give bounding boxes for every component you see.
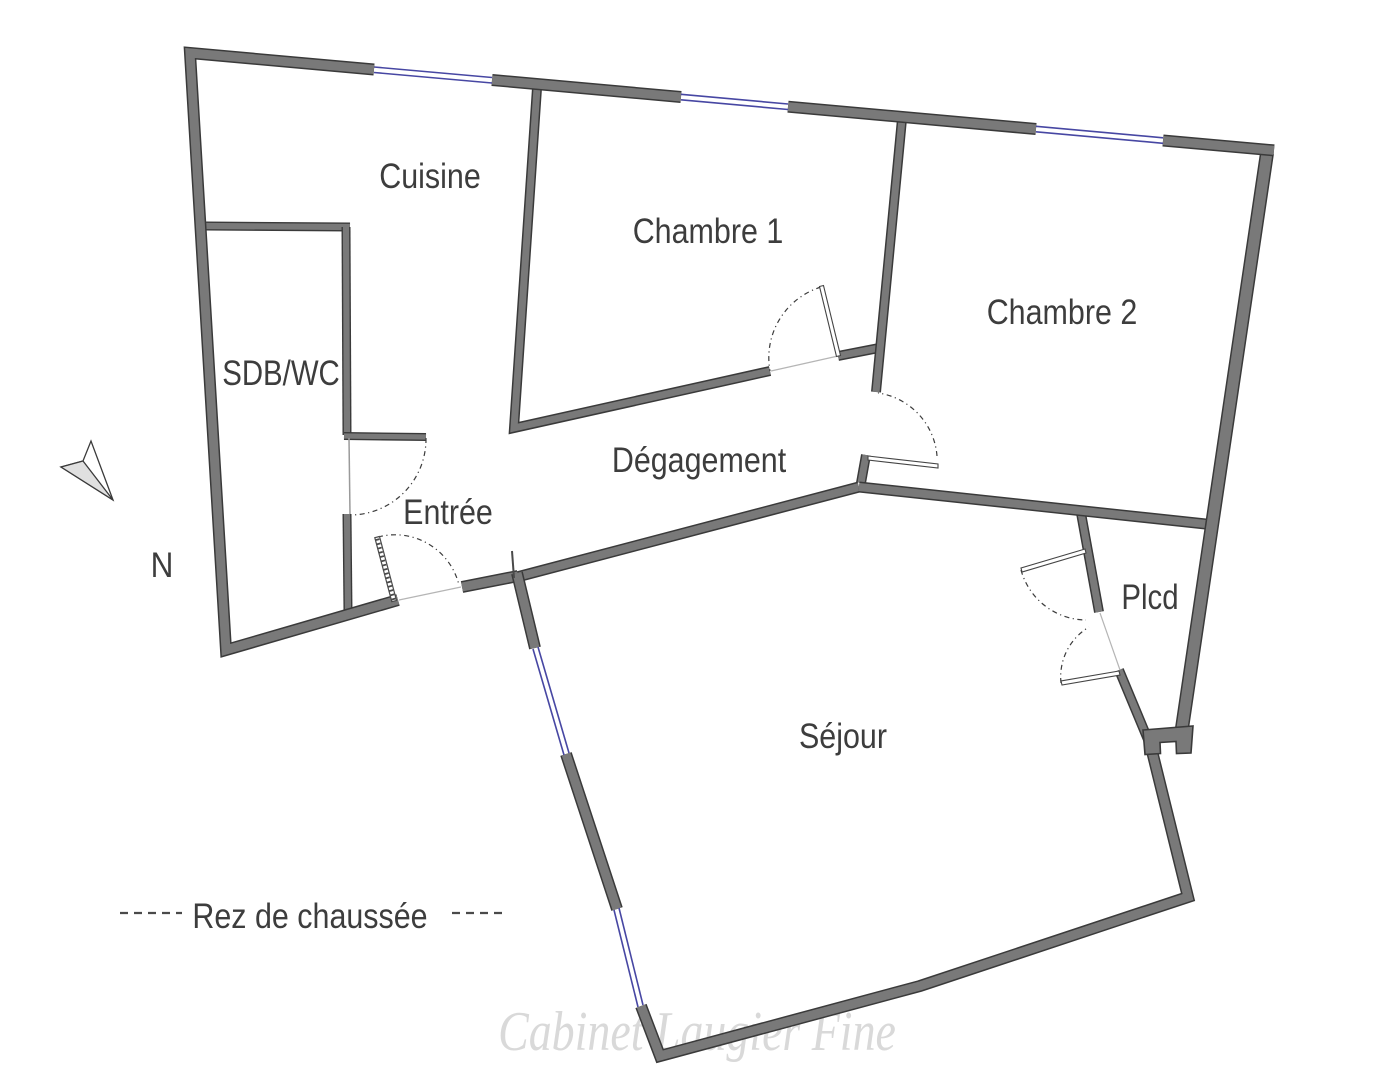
svg-text:SDB/WC: SDB/WC bbox=[222, 354, 340, 393]
svg-text:Séjour: Séjour bbox=[799, 716, 887, 755]
svg-text:Chambre 2: Chambre 2 bbox=[987, 292, 1138, 331]
svg-text:N: N bbox=[151, 547, 174, 586]
svg-text:Cuisine: Cuisine bbox=[379, 156, 481, 195]
svg-text:Dégagement: Dégagement bbox=[612, 440, 786, 479]
svg-text:Plcd: Plcd bbox=[1121, 578, 1178, 617]
svg-text:Chambre 1: Chambre 1 bbox=[633, 211, 784, 250]
svg-text:Rez de chaussée: Rez de chaussée bbox=[192, 896, 427, 935]
svg-text:Entrée: Entrée bbox=[403, 492, 493, 531]
